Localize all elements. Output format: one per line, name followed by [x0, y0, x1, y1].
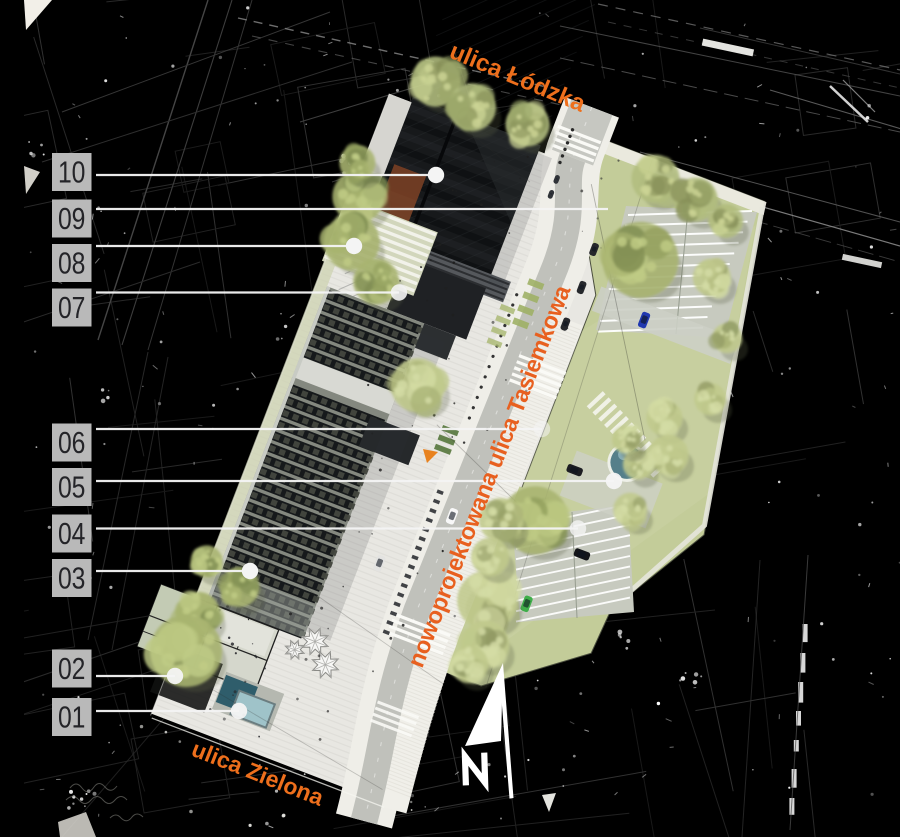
svg-text:01: 01	[58, 701, 86, 735]
svg-text:04: 04	[58, 517, 86, 551]
svg-text:10: 10	[58, 156, 86, 190]
svg-text:07: 07	[58, 291, 86, 325]
svg-text:05: 05	[58, 471, 86, 505]
svg-text:08: 08	[58, 247, 86, 281]
svg-text:06: 06	[58, 426, 86, 460]
svg-text:03: 03	[58, 562, 86, 596]
svg-text:02: 02	[58, 652, 86, 686]
svg-text:09: 09	[58, 202, 86, 236]
